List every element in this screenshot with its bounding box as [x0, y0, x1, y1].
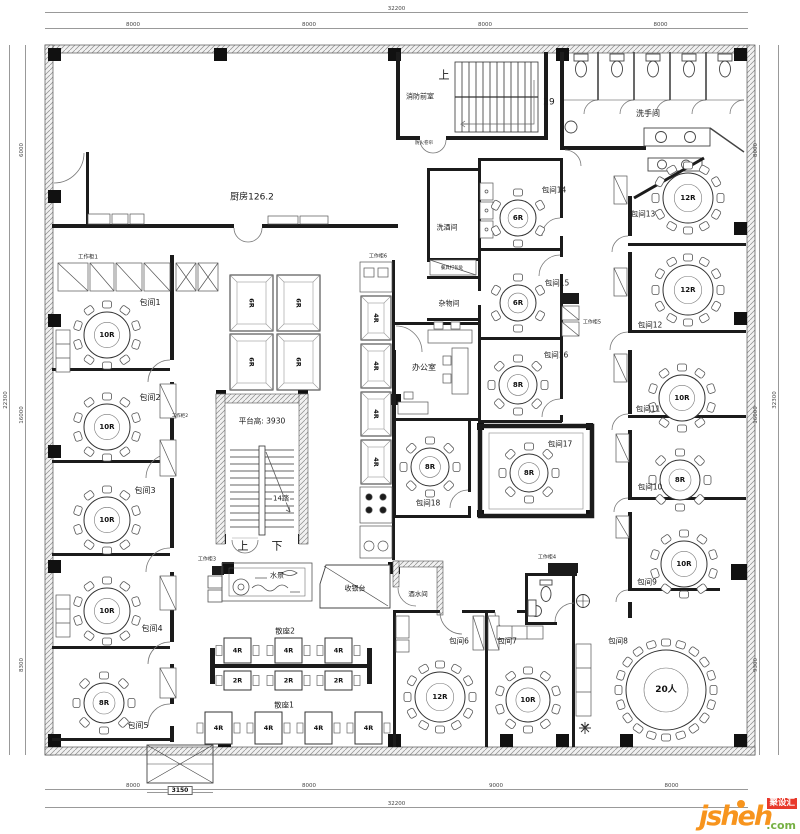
- booth-table: 4R: [317, 638, 360, 663]
- table-capacity-label: 6R: [295, 298, 303, 308]
- table-capacity-label: 12R: [680, 286, 696, 294]
- table-capacity-label: 10R: [99, 423, 115, 431]
- table-capacity-label: 6R: [248, 298, 256, 308]
- dining-table: 8R: [73, 672, 135, 734]
- dining-table: 10R: [73, 577, 140, 645]
- table-capacity-label: 10R: [99, 331, 115, 339]
- dining-table: 10R: [73, 393, 140, 461]
- table-capacity-label: 4R: [264, 724, 274, 732]
- floor-plan-drawing: 6R6R6R6R4R4R4R4R4R4R4R2R2R2R4R4R4R4R 10R…: [0, 0, 800, 834]
- table-capacity-label: 10R: [99, 516, 115, 524]
- dining-table: 8R: [649, 449, 711, 511]
- table-capacity-label: 8R: [675, 476, 686, 484]
- booth-table: 2R: [317, 671, 360, 690]
- table-capacity-label: 4R: [372, 457, 380, 467]
- dining-table: 6R: [491, 189, 546, 247]
- table-capacity-label: 8R: [513, 381, 524, 389]
- table-capacity-label: 6R: [513, 214, 524, 222]
- booth-table: 4R: [267, 638, 310, 663]
- dining-table: 12R: [652, 162, 724, 234]
- table-capacity-label: 8R: [99, 699, 110, 707]
- logo-tld: .com: [766, 819, 796, 832]
- booth-table: 6R: [230, 275, 273, 331]
- table-capacity-label: 10R: [99, 607, 115, 615]
- booth-table: 6R: [230, 334, 273, 390]
- booth-table: 4R: [216, 638, 259, 663]
- cashier-counter: [320, 565, 390, 608]
- booth-table: 6R: [277, 275, 320, 331]
- booth-table: 4R: [247, 712, 290, 744]
- table-capacity-label: 6R: [248, 357, 256, 367]
- dining-table: 10R: [495, 667, 561, 733]
- dining-table: 8R: [400, 437, 460, 497]
- table-capacity-label: 12R: [432, 693, 448, 701]
- table-capacity-label: 4R: [214, 724, 224, 732]
- table-capacity-label: 4R: [372, 409, 380, 419]
- logo-badge: 聚设汇: [767, 798, 797, 809]
- restaurant-floor-plan: 6R6R6R6R4R4R4R4R4R4R4R2R2R2R4R4R4R4R 10R…: [0, 0, 800, 834]
- dining-table: 10R: [73, 486, 140, 554]
- jsheh-logo: 聚设汇 jsheh .com: [697, 798, 797, 832]
- table-capacity-label: 4R: [364, 724, 374, 732]
- table-capacity-label: 10R: [674, 394, 690, 402]
- table-capacity-label: 10R: [520, 696, 536, 704]
- booth-table: 2R: [267, 671, 310, 690]
- table-capacity-label: 4R: [314, 724, 324, 732]
- table-capacity-label: 2R: [233, 677, 243, 685]
- restroom-fixtures: [564, 52, 744, 171]
- table-capacity-label: 2R: [334, 677, 344, 685]
- dining-table: 12R: [652, 254, 724, 326]
- dining-table: 8R: [499, 443, 559, 503]
- booth-table: 4R: [197, 712, 240, 744]
- table-capacity-label: 12R: [680, 194, 696, 202]
- table-capacity-label: 8R: [524, 469, 535, 477]
- booth-table: 4R: [347, 712, 390, 744]
- dining-table: 12R: [404, 661, 476, 733]
- central-stair: [230, 446, 294, 538]
- table-capacity-label: 4R: [334, 647, 344, 655]
- booth-table: 4R: [361, 344, 391, 388]
- dining-table: 10R: [650, 530, 717, 598]
- dining-table: 8R: [488, 355, 548, 415]
- table-capacity-label: 6R: [295, 357, 303, 367]
- table-capacity-label: 6R: [513, 299, 524, 307]
- booth-table: 6R: [277, 334, 320, 390]
- dining-table: 6R: [491, 274, 546, 332]
- cabinets: [56, 176, 629, 716]
- logo-name: jsheh: [699, 801, 771, 832]
- table-capacity-label: 4R: [372, 361, 380, 371]
- table-capacity-label: 4R: [284, 647, 294, 655]
- table-capacity-label: 8R: [425, 463, 436, 471]
- booth-table: 4R: [361, 440, 391, 484]
- table-capacity-label: 20人: [655, 683, 678, 695]
- dining-table: 10R: [73, 301, 140, 369]
- booth-table: 4R: [297, 712, 340, 744]
- table-capacity-label: 10R: [676, 560, 692, 568]
- fire-stair: [455, 62, 538, 132]
- dining-table: 20人: [615, 639, 717, 741]
- booth-table: 4R: [361, 296, 391, 340]
- table-capacity-label: 4R: [372, 313, 380, 323]
- booth-table: 4R: [361, 392, 391, 436]
- table-capacity-label: 4R: [233, 647, 243, 655]
- booth-table: 2R: [216, 671, 259, 690]
- dining-table: 10R: [648, 364, 715, 432]
- table-capacity-label: 2R: [284, 677, 294, 685]
- small-wc-fixtures: [528, 580, 552, 617]
